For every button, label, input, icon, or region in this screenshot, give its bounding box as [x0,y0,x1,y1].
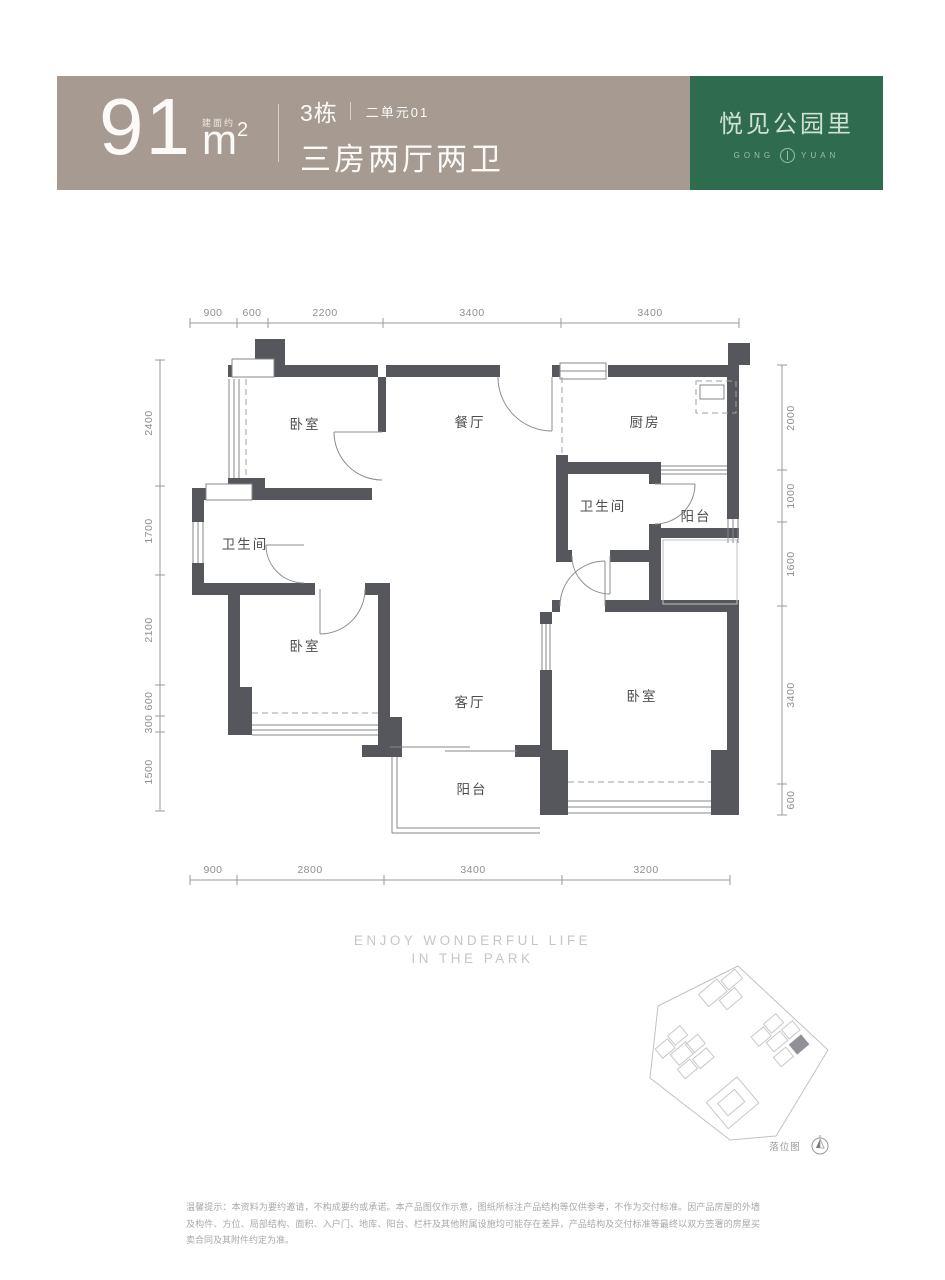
dim-top-5: 3400 [637,307,662,319]
area-value: 91 [99,88,192,166]
building-cluster-left [654,1021,716,1083]
dim-right-3: 1600 [785,551,797,576]
building-label: 3栋 [300,94,338,128]
dim-bottom-4: 3200 [633,864,658,876]
sitemap-svg: 落位图 [620,950,870,1180]
brand-en-right: YUAN [801,151,839,160]
header-divider [278,104,279,162]
dim-bottom-1: 900 [203,864,222,876]
dim-top-4: 3400 [459,307,484,319]
walls [192,339,750,815]
sitemap-label: 落位图 [769,1141,801,1153]
dim-top-1: 900 [203,307,222,319]
compass-icon [812,1135,828,1154]
building-cluster-top [698,966,751,1017]
building-unit-separator [350,102,351,120]
brand-name: 悦见公园里 [719,104,854,139]
dim-left-3: 2100 [143,617,155,642]
building-cluster-bottom [706,1077,758,1129]
brand-seal-icon [780,148,795,163]
dim-left-6: 1500 [143,759,155,784]
room-label-kitchen: 厨房 [630,415,661,430]
dim-top-2: 600 [242,307,261,319]
header-band: 91 建面约 m2 3栋 二单元01 三房两厅两卫 [57,76,690,190]
floorplan-svg: 900 600 2200 3400 3400 900 2800 3400 320… [140,295,800,895]
dim-bottom-2: 2800 [297,864,322,876]
dim-left-4: 600 [143,691,155,710]
header-right: 3栋 二单元01 三房两厅两卫 [300,98,504,179]
room-label-bedroom-top-left: 卧室 [290,416,321,432]
dim-left-2: 1700 [143,518,155,543]
dim-right-4: 3400 [785,682,797,707]
area-unit-wrap: 建面约 m2 [202,110,248,166]
area-prefix-label: 建面约 [202,116,235,129]
dim-right-5: 600 [785,790,797,809]
sitemap: 落位图 [620,950,870,1180]
disclaimer-text: 温馨提示：本资料为要约邀请，不构成要约或承诺。本产品图仅作示意，图纸所标注产品结… [186,1199,760,1249]
dim-top-3: 2200 [312,307,337,319]
dim-left-5: 300 [143,714,155,733]
building-cluster-right [750,1009,811,1070]
room-label-bath-right: 卫生间 [580,499,627,514]
room-label-bath-left: 卫生间 [222,537,269,552]
area-group: 91 建面约 m2 [99,88,248,166]
room-label-dining: 餐厅 [455,415,486,430]
light-outline [663,540,737,604]
room-label-living: 客厅 [455,694,486,710]
dim-right-1: 2000 [785,405,797,430]
room-label-balcony-right: 阳台 [681,509,712,524]
room-label-bedroom-bottom-right: 卧室 [627,688,658,704]
room-label-balcony-bottom: 阳台 [457,782,488,797]
unit-sup: 2 [237,119,248,141]
dim-bottom-3: 3400 [460,864,485,876]
unit-label: 二单元01 [363,100,432,123]
brand-en-row: GONG YUAN [734,148,840,163]
brand-en-left: GONG [734,151,774,160]
dim-left-1: 2400 [143,410,155,435]
room-label-bedroom-bottom-left: 卧室 [290,638,321,654]
floorplan-page: 91 建面约 m2 3栋 二单元01 三房两厅两卫 悦见公园里 GONG YUA… [0,0,945,1280]
wall-niches [206,359,606,500]
brand-box: 悦见公园里 GONG YUAN [690,76,883,190]
dim-right-2: 1000 [785,483,797,508]
floorplan: 900 600 2200 3400 3400 900 2800 3400 320… [140,295,800,895]
layout-label: 三房两厅两卫 [300,134,504,179]
slogan-line1: ENJOY WONDERFUL LIFE [0,932,945,950]
building-unit-row: 3栋 二单元01 [300,98,504,124]
